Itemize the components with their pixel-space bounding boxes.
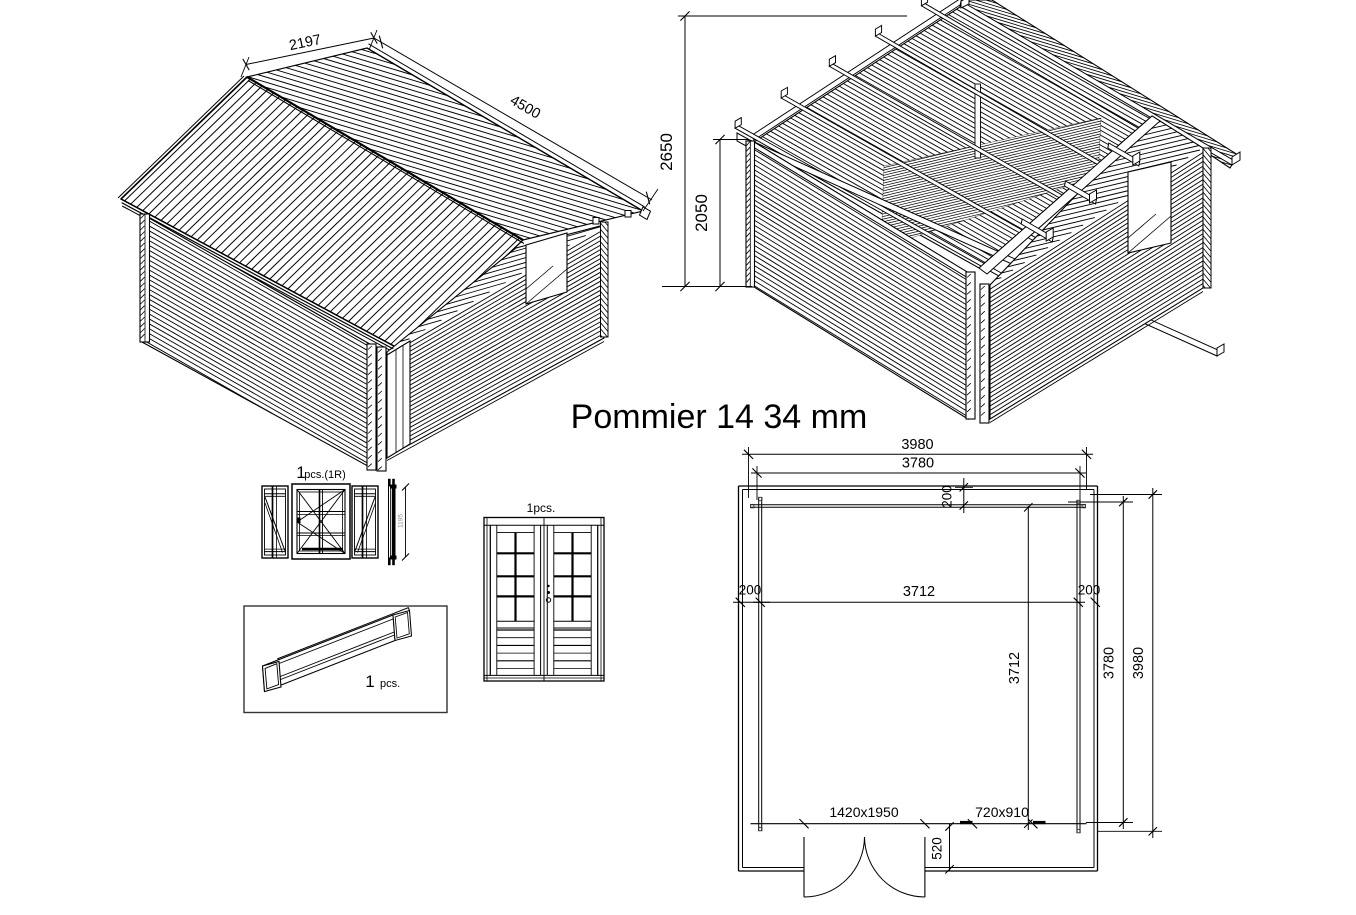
svg-text:200: 200 <box>1078 583 1101 598</box>
svg-text:3712: 3712 <box>1007 652 1023 684</box>
svg-text:1195: 1195 <box>398 514 405 528</box>
svg-text:200: 200 <box>739 583 762 598</box>
svg-text:520: 520 <box>930 837 945 860</box>
svg-text:2050: 2050 <box>692 194 711 232</box>
svg-text:3780: 3780 <box>902 456 934 472</box>
svg-text:pcs.: pcs. <box>380 678 400 690</box>
svg-text:1: 1 <box>365 672 374 691</box>
svg-text:pcs.(1R): pcs.(1R) <box>304 469 346 481</box>
svg-text:3980: 3980 <box>1131 647 1147 679</box>
svg-text:1420x1950: 1420x1950 <box>829 804 899 820</box>
svg-text:200: 200 <box>940 485 955 508</box>
svg-text:1pcs.: 1pcs. <box>527 501 556 515</box>
svg-text:3712: 3712 <box>903 584 935 600</box>
svg-text:3780: 3780 <box>1102 647 1118 679</box>
svg-text:Pommier 14 34 mm: Pommier 14 34 mm <box>571 398 868 436</box>
svg-text:2650: 2650 <box>657 133 676 171</box>
svg-text:720x910: 720x910 <box>975 804 1029 820</box>
svg-text:3980: 3980 <box>901 437 933 453</box>
